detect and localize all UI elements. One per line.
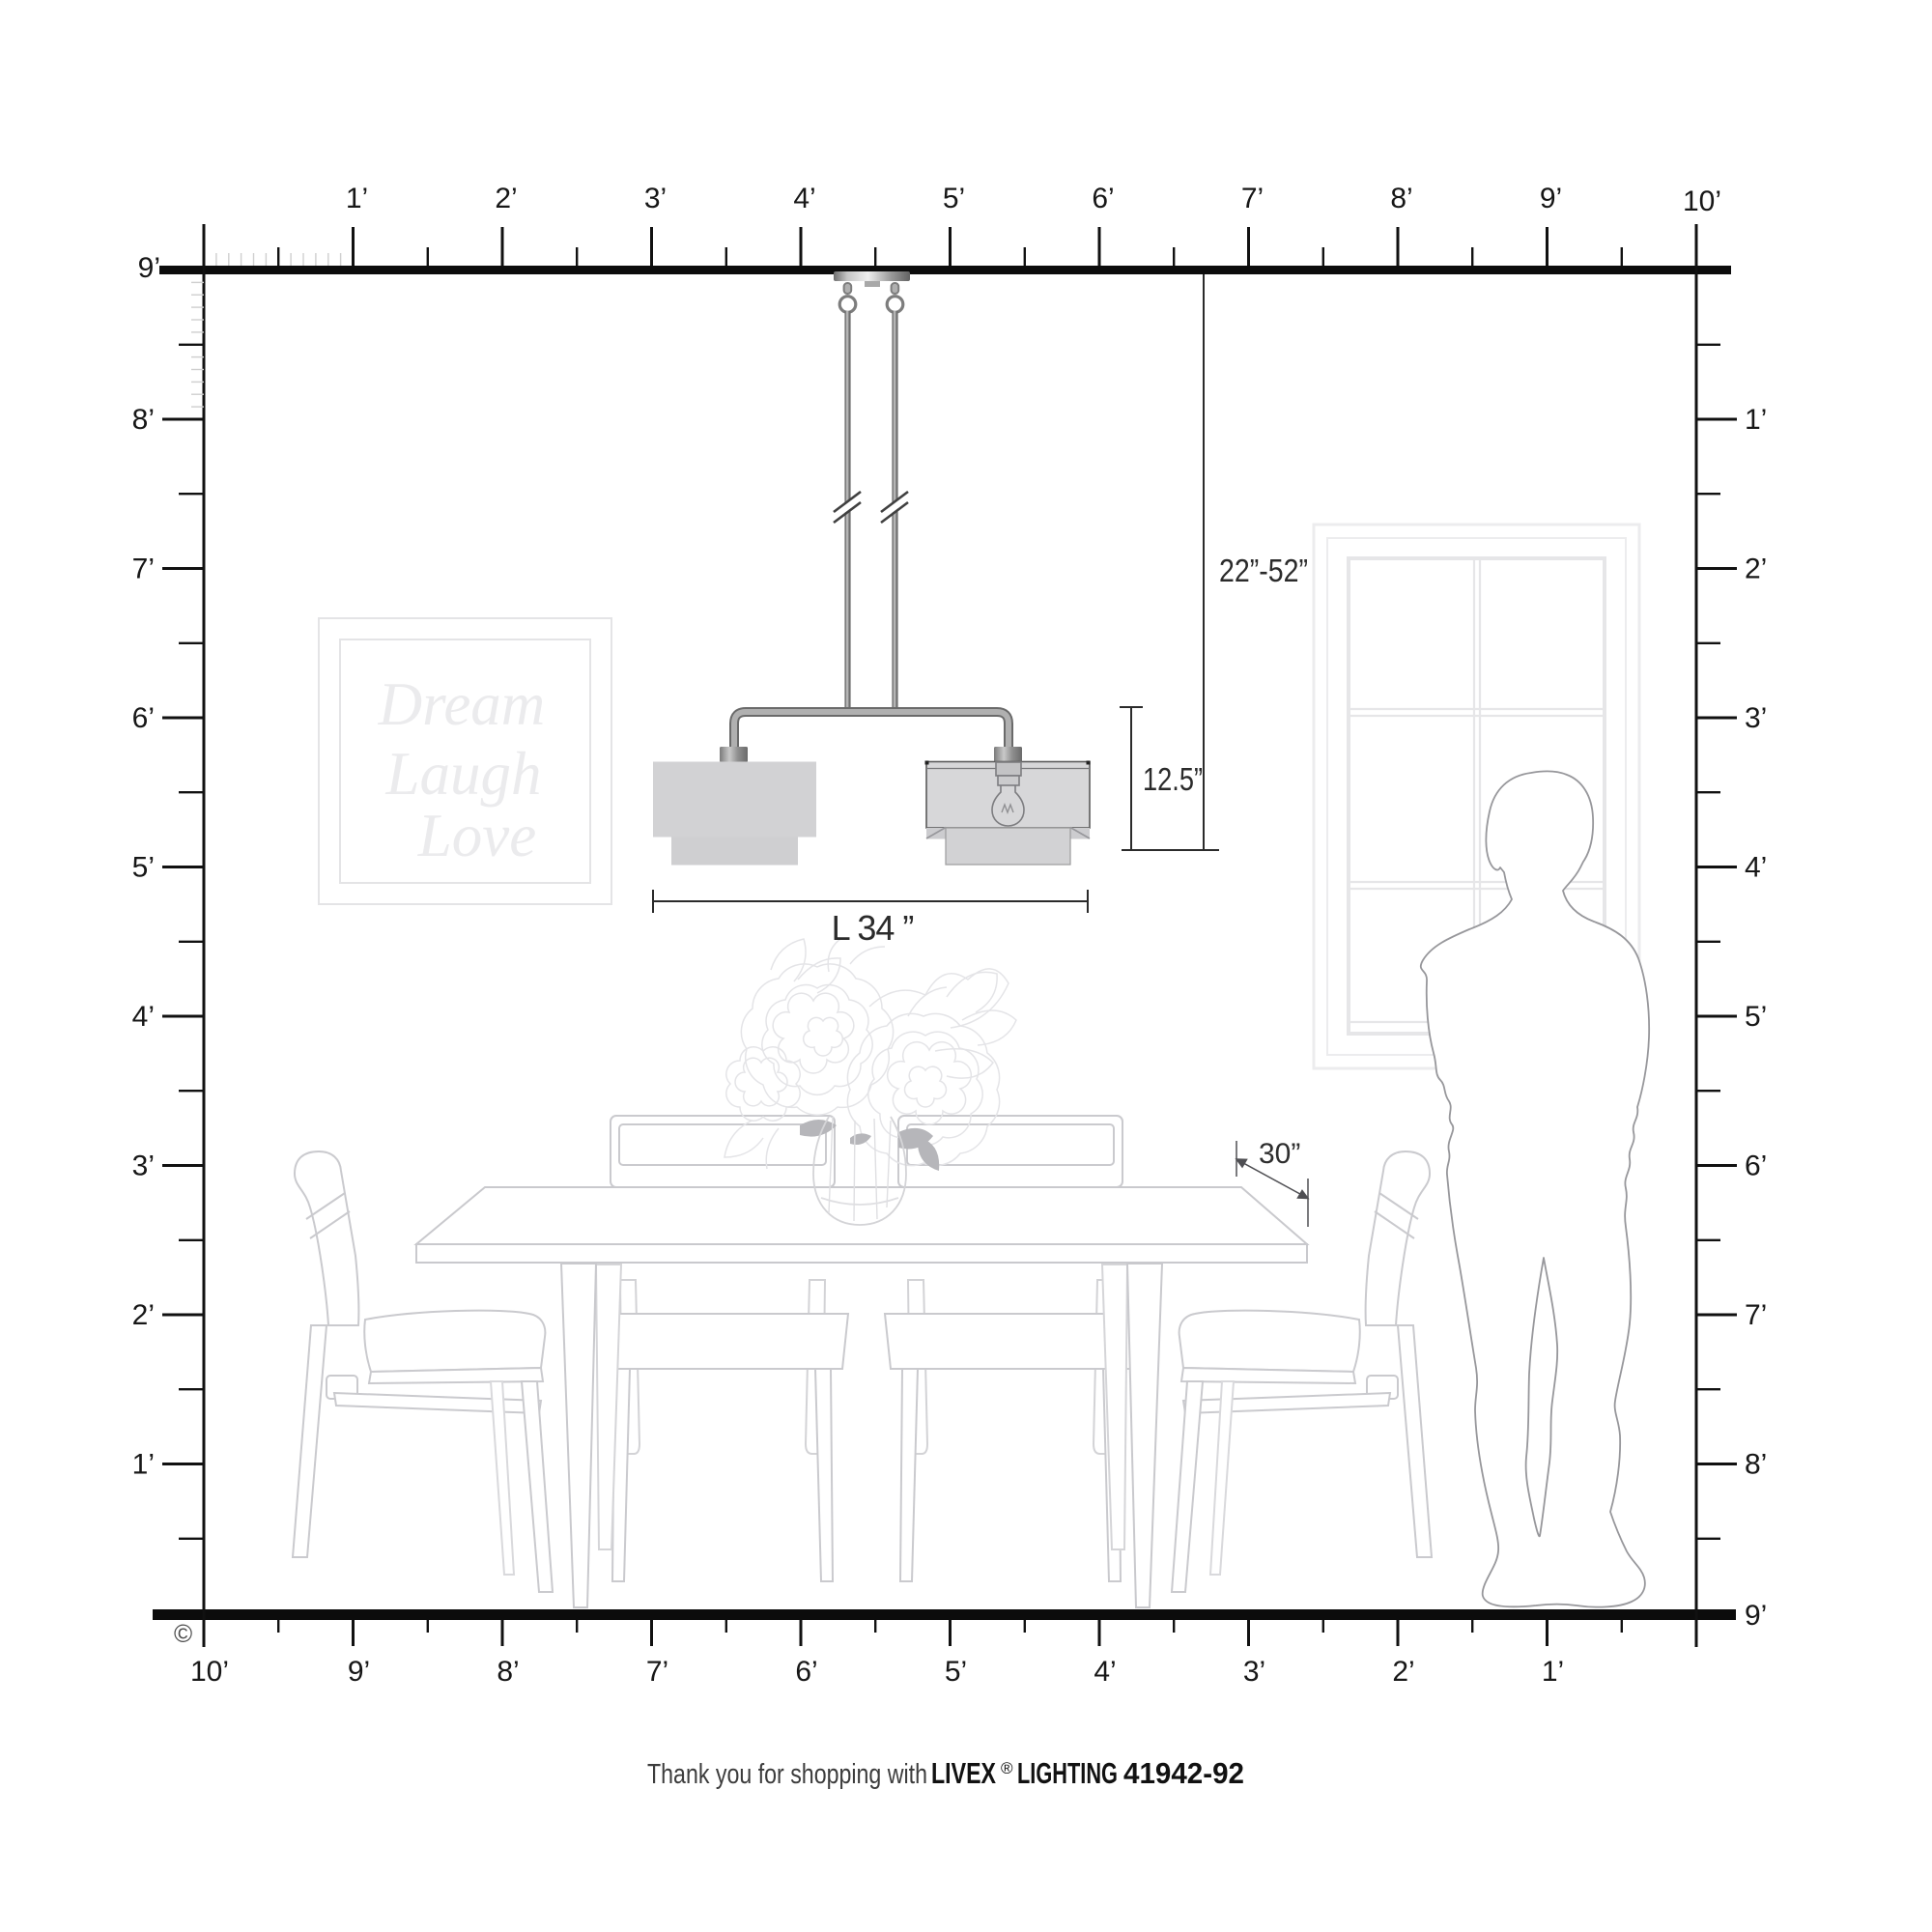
- svg-text:5’: 5’: [1745, 1001, 1767, 1033]
- svg-text:6’: 6’: [1745, 1151, 1767, 1182]
- svg-text:6’: 6’: [1092, 183, 1114, 214]
- svg-text:10’: 10’: [190, 1656, 229, 1688]
- svg-text:5’: 5’: [945, 1656, 967, 1688]
- svg-text:L 34 ”: L 34 ”: [832, 908, 914, 948]
- svg-text:30”: 30”: [1259, 1138, 1300, 1170]
- svg-text:3’: 3’: [1243, 1656, 1265, 1688]
- svg-text:9’: 9’: [1745, 1600, 1767, 1632]
- svg-text:1’: 1’: [1745, 404, 1767, 436]
- svg-text:Dream: Dream: [378, 670, 546, 738]
- svg-text:7’: 7’: [132, 554, 155, 585]
- svg-text:3’: 3’: [644, 183, 667, 214]
- svg-text:8’: 8’: [1745, 1449, 1767, 1481]
- svg-text:LIVEX: LIVEX: [931, 1756, 996, 1790]
- svg-text:®: ®: [1001, 1759, 1013, 1777]
- svg-text:8’: 8’: [132, 404, 155, 436]
- svg-text:9’: 9’: [1540, 183, 1562, 214]
- svg-text:2’: 2’: [495, 183, 517, 214]
- svg-text:9’: 9’: [138, 252, 160, 284]
- svg-text:8’: 8’: [1390, 183, 1412, 214]
- svg-text:12.5”: 12.5”: [1143, 761, 1203, 797]
- svg-text:1’: 1’: [346, 183, 368, 214]
- svg-text:6’: 6’: [795, 1656, 817, 1688]
- svg-text:4’: 4’: [132, 1001, 155, 1033]
- svg-text:8’: 8’: [497, 1656, 519, 1688]
- svg-text:7’: 7’: [1745, 1299, 1767, 1331]
- svg-text:1’: 1’: [1542, 1656, 1564, 1688]
- svg-text:5’: 5’: [132, 852, 155, 884]
- svg-text:6’: 6’: [132, 702, 155, 734]
- svg-text:1’: 1’: [132, 1449, 155, 1481]
- svg-text:4’: 4’: [793, 183, 815, 214]
- svg-text:9’: 9’: [348, 1656, 370, 1688]
- svg-text:3’: 3’: [1745, 702, 1767, 734]
- svg-text:10’: 10’: [1683, 185, 1721, 217]
- svg-text:Laugh: Laugh: [384, 740, 541, 808]
- svg-text:©: ©: [174, 1619, 192, 1648]
- svg-text:2’: 2’: [1392, 1656, 1414, 1688]
- svg-text:41942-92: 41942-92: [1123, 1756, 1244, 1790]
- svg-text:4’: 4’: [1094, 1656, 1116, 1688]
- svg-text:2’: 2’: [132, 1299, 155, 1331]
- svg-text:LIGHTING: LIGHTING: [1017, 1756, 1118, 1790]
- svg-text:22”-52”: 22”-52”: [1219, 553, 1308, 588]
- svg-text:5’: 5’: [943, 183, 965, 214]
- svg-text:2’: 2’: [1745, 554, 1767, 585]
- svg-text:Love: Love: [417, 802, 536, 869]
- svg-text:7’: 7’: [646, 1656, 668, 1688]
- svg-text:Thank you for shopping with: Thank you for shopping with: [647, 1759, 927, 1790]
- svg-text:4’: 4’: [1745, 852, 1767, 884]
- svg-text:3’: 3’: [132, 1151, 155, 1182]
- svg-text:7’: 7’: [1241, 183, 1264, 214]
